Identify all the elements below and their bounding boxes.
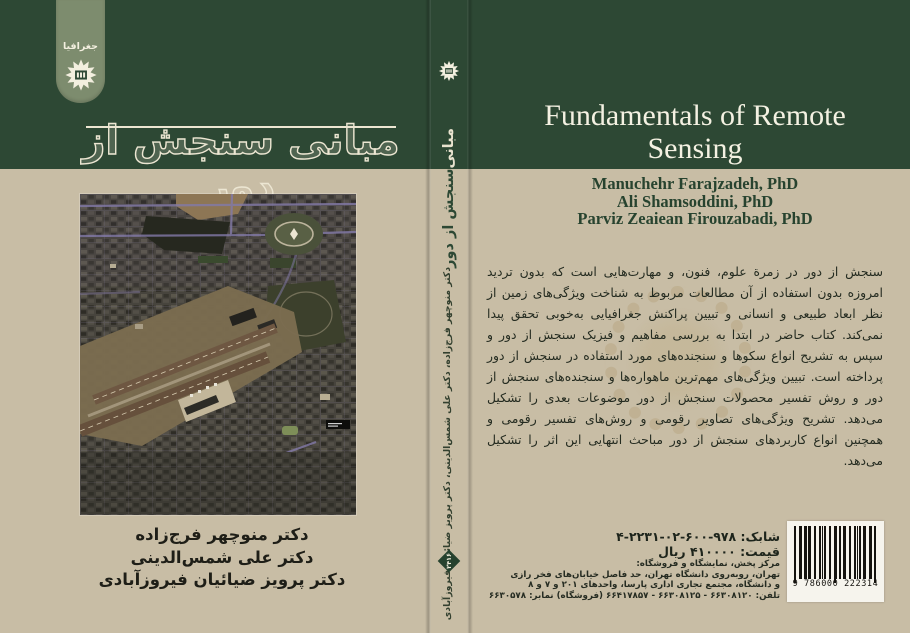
spine-title: مبانی سنجش از دور (439, 128, 459, 258)
back-author-2: Ali Shamsoddini, PhD (505, 193, 885, 211)
publication-info: شابک: ۹۷۸-۶۰۰-۰۲-۲۲۳۱-۴ قیمت: ۴۱۰۰۰۰ ریا… (450, 529, 780, 601)
spine-title-rest: سنجش از دور (441, 168, 457, 267)
price-line: قیمت: ۴۱۰۰۰۰ ریال (450, 544, 780, 559)
back-title-line-1: Fundamentals of Remote (505, 99, 885, 132)
back-authors: Manuchehr Farajzadeh, PhD Ali Shamsoddin… (505, 175, 885, 228)
distribution-line-2: تهران، روبه‌روی دانشگاه تهران، حد فاصل خ… (450, 570, 780, 581)
back-title: Fundamentals of Remote Sensing (505, 99, 885, 165)
front-author-3: دکتر پرویز ضیائیان فیروزآبادی (57, 569, 387, 592)
barcode-digits: 9 786000 222314 (787, 579, 884, 589)
barcode-bars (794, 526, 877, 579)
distribution-line-3: و دانشگاه، مجتمع تجاری اداری پارسا، واحد… (450, 580, 780, 591)
book-cover: جغرافیا مبانی سنجش از دور (0, 0, 910, 633)
back-title-line-2: Sensing (505, 132, 885, 165)
spine-authors: دکتر منوچهر فرج‌زاده، دکتر علی شمس‌الدین… (442, 267, 456, 525)
category-label: جغرافیا (56, 41, 105, 52)
publisher-logo-icon (64, 58, 98, 92)
front-author-2: دکتر علی شمس‌الدینی (57, 547, 387, 570)
front-author-1: دکتر منوچهر فرج‌زاده (57, 524, 387, 547)
satellite-cover-image (80, 194, 356, 515)
spine-title-top: مبانی (441, 128, 457, 168)
front-authors: دکتر منوچهر فرج‌زاده دکتر علی شمس‌الدینی… (57, 524, 387, 592)
back-author-3: Parviz Zeaiean Firouzabadi, PhD (505, 210, 885, 228)
isbn-line: شابک: ۹۷۸-۶۰۰-۰۲-۲۲۳۱-۴ (450, 529, 780, 544)
barcode: 9 786000 222314 (787, 521, 884, 602)
back-author-1: Manuchehr Farajzadeh, PhD (505, 175, 885, 193)
spine-publisher-logo-icon (438, 60, 460, 82)
book-summary: سنجش از دور در زمرة علوم، فنون، و مهارت‌… (487, 261, 883, 471)
distribution-line-4: تلفن: ۶۶۳۰۸۱۲۰ - ۶۶۳۰۸۱۲۵ - ۶۶۴۱۷۸۵۷ (فر… (450, 591, 780, 602)
distribution-line-1: مرکز پخش، نمایشگاه و فروشگاه: (450, 559, 780, 570)
category-tab: جغرافیا (56, 0, 105, 103)
